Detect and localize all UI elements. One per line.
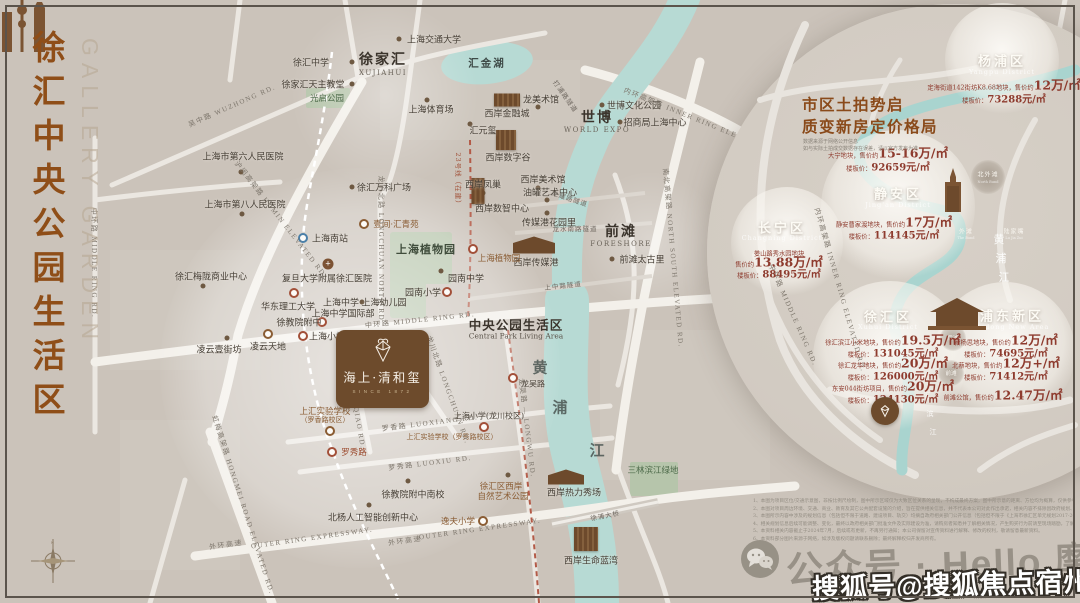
price-value: 12.47万/㎡ xyxy=(994,388,1063,403)
inset-title-line1: 市区土拍势启 xyxy=(802,93,904,115)
price-label: 楼板价： xyxy=(849,234,874,241)
price-value: 88495元/㎡ xyxy=(762,270,820,281)
inset-subtitle-2: 如与实际土拍成交数据存在误差，请以官方发布为准 xyxy=(803,145,918,152)
gallery-garden-watermark: GALLERY GARDEN xyxy=(76,38,103,346)
price-value: 73288元/㎡ xyxy=(987,95,1045,106)
map-label: 浦 xyxy=(996,250,1007,266)
compass-icon: N xyxy=(30,538,76,584)
map-label: The Bund xyxy=(957,236,974,240)
price-line: 楼板价：71412元/㎡ xyxy=(964,364,1048,383)
disclaimer-line: 1、本图为项目区位/交通示意图，非按比例尺绘制，图中所示区域仅为大致区位关系的呈… xyxy=(753,498,1073,506)
map-label: North Bund xyxy=(978,180,999,184)
price-value: 71412元/㎡ xyxy=(989,371,1047,382)
bund-tower-icon xyxy=(941,168,965,212)
price-line: 楼板价：92659元/㎡ xyxy=(846,156,930,175)
svg-text:N: N xyxy=(51,540,54,545)
map-label: Lu Jia Zui xyxy=(1005,236,1022,240)
price-label: 楼板价： xyxy=(846,166,871,173)
label-lujiazui: 陆家嘴 xyxy=(1003,227,1024,236)
disclaimer-line: 2、本图对项目周边环境、交通、商业、教育及其它公共配套设施的介绍，旨在提供相关信… xyxy=(753,506,1073,514)
district-name-en: Jing'an District xyxy=(865,201,931,209)
price-value: 92659元/㎡ xyxy=(871,163,929,174)
label-the-bund: 外滩 xyxy=(959,227,973,236)
xuhui-diamond-logo xyxy=(871,397,899,425)
price-line: 楼板价：73288元/㎡ xyxy=(962,88,1046,107)
district-name: 杨浦区 xyxy=(978,51,1026,70)
price-line: 楼板价：114145元/㎡ xyxy=(849,224,940,243)
price-label: 楼板价： xyxy=(848,397,873,404)
label-north-bund: 北外滩 xyxy=(977,170,998,179)
inset-title-line2: 质变新房定价格局 xyxy=(802,115,938,137)
price-label: 前滩公馆，售价约 xyxy=(943,395,993,402)
price-value: 114145元/㎡ xyxy=(874,231,939,242)
map-label: 江 xyxy=(930,427,937,437)
wechat-icon xyxy=(740,539,780,579)
disclaimer-line: 3、本图所示内容中涉及的规划信息（包括但不限于道路、建设项目、轨交）均摘自政府相… xyxy=(753,513,1073,521)
price-label: 楼板价： xyxy=(964,374,989,381)
price-label: 楼板价： xyxy=(737,273,762,280)
inset-subtitle-1: 数据来源于网络公开信息 xyxy=(803,138,858,145)
map-poster: 徐汇中学徐家汇XUJIAHUI徐家汇天主教堂上海交通大学汇金湖光启公园上海体育场… xyxy=(0,0,1080,603)
inset-pavilion-icon xyxy=(926,298,988,332)
district-name: 静安区 xyxy=(874,184,922,203)
price-line: 前滩公馆，售价约12.47万/㎡ xyxy=(943,385,1062,404)
price-line: 楼板价：88495元/㎡ xyxy=(737,263,821,282)
disclaimer-line: 4、相关规划信息后续可能调整、变化，最终以政府相关部门批准文件及实际建设为准，请… xyxy=(753,521,1073,529)
poster-title: 徐汇中央公园生活区 xyxy=(22,30,70,426)
price-label: 楼板价： xyxy=(962,98,987,105)
district-name: 浦东新区 xyxy=(980,306,1044,325)
sohu-watermark: 搜狐号@搜狐焦点宿州站 xyxy=(812,559,1080,603)
